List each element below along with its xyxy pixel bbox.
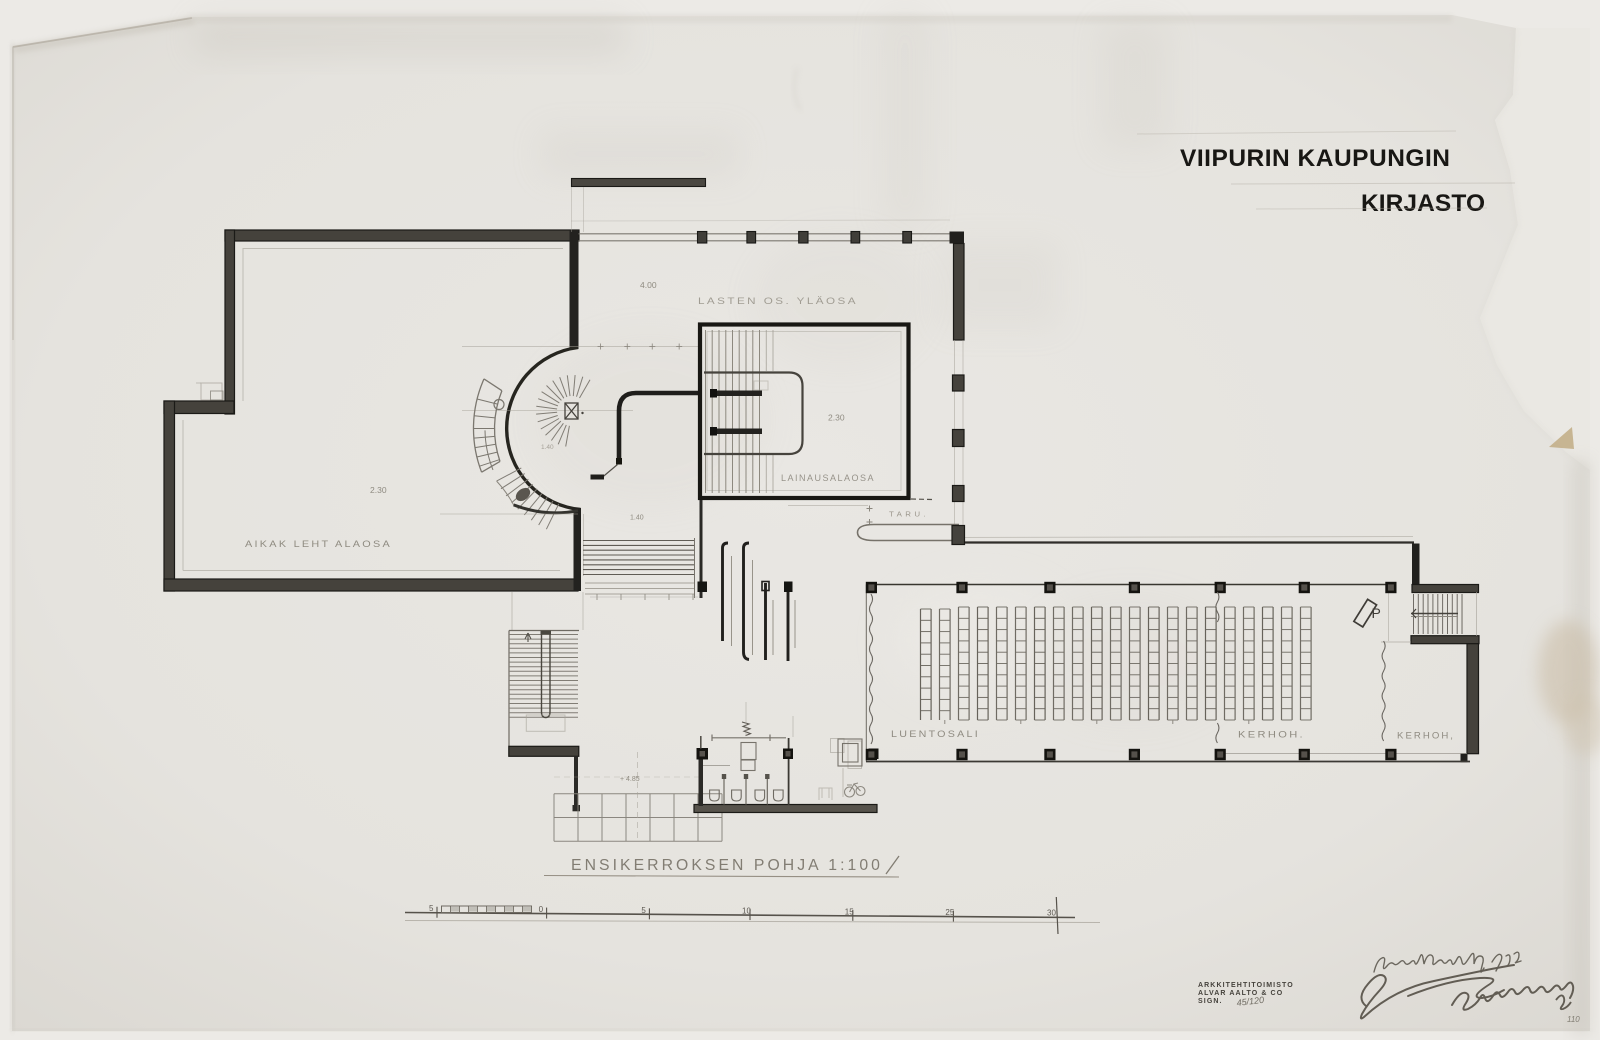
svg-text:5: 5 (641, 906, 646, 915)
svg-text:+ 4.85: + 4.85 (620, 776, 640, 783)
svg-text:110: 110 (1567, 1015, 1580, 1024)
svg-text:4.00: 4.00 (640, 280, 657, 290)
svg-text:LASTEN OS. YLÄOSA: LASTEN OS. YLÄOSA (698, 296, 858, 307)
svg-text:TARU.: TARU. (889, 512, 929, 519)
svg-text:30: 30 (1047, 909, 1056, 918)
svg-text:25: 25 (945, 908, 954, 917)
svg-text:10: 10 (742, 907, 751, 916)
svg-text:ALVAR AALTO & CO: ALVAR AALTO & CO (1198, 990, 1283, 997)
svg-text:1.40: 1.40 (630, 515, 644, 522)
svg-text:KIRJASTO: KIRJASTO (1361, 190, 1485, 217)
svg-text:ARKKITEHTITOIMISTO: ARKKITEHTITOIMISTO (1198, 982, 1294, 989)
svg-text:ENSIKERROKSEN POHJA 1:100: ENSIKERROKSEN POHJA 1:100 (571, 857, 883, 874)
svg-text:KERHOH,: KERHOH, (1397, 731, 1455, 742)
svg-text:1.40: 1.40 (541, 444, 554, 451)
svg-text:2.30: 2.30 (828, 413, 845, 423)
svg-text:P: P (1372, 605, 1381, 621)
svg-text:15: 15 (845, 907, 854, 916)
svg-text:SIGN.: SIGN. (1198, 998, 1223, 1005)
svg-text:LAINAUSALAOSA: LAINAUSALAOSA (781, 473, 875, 483)
svg-text:AIKAK LEHT ALAOSA: AIKAK LEHT ALAOSA (245, 539, 392, 550)
svg-text:VIIPURIN KAUPUNGIN: VIIPURIN KAUPUNGIN (1180, 145, 1450, 172)
svg-text:0: 0 (539, 905, 544, 914)
svg-text:KERHOH.: KERHOH. (1238, 730, 1305, 741)
svg-text:LUENTOSALI: LUENTOSALI (891, 729, 980, 740)
svg-text:2.30: 2.30 (370, 485, 387, 495)
svg-text:5: 5 (429, 904, 434, 913)
